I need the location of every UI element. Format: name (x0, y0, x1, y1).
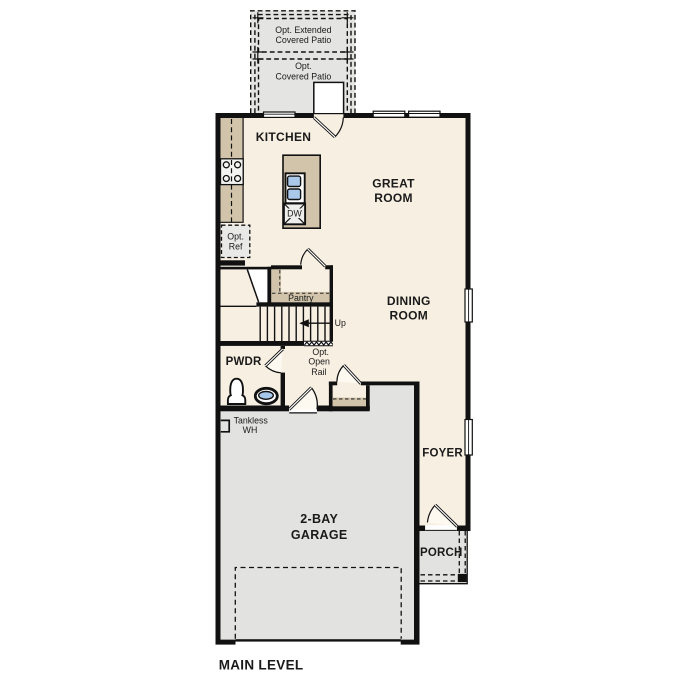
svg-text:FOYER: FOYER (422, 448, 463, 460)
svg-text:Ref: Ref (229, 242, 243, 252)
svg-text:GARAGE: GARAGE (291, 528, 348, 542)
svg-text:Opt. Extended: Opt. Extended (275, 25, 331, 35)
svg-text:Opt.: Opt. (295, 61, 312, 71)
svg-text:Up: Up (335, 318, 346, 328)
svg-text:Open: Open (308, 356, 330, 366)
svg-text:Opt.: Opt. (312, 347, 329, 357)
svg-text:PORCH: PORCH (420, 547, 463, 559)
svg-text:Opt.: Opt. (227, 231, 244, 241)
svg-text:GREAT: GREAT (372, 177, 415, 191)
svg-text:Rail: Rail (311, 367, 326, 377)
svg-text:ROOM: ROOM (390, 308, 429, 322)
svg-text:WH: WH (243, 425, 258, 435)
svg-text:ROOM: ROOM (374, 191, 413, 205)
svg-text:DINING: DINING (387, 294, 431, 308)
svg-text:Covered Patio: Covered Patio (276, 71, 332, 81)
svg-text:DW: DW (287, 209, 302, 219)
svg-text:Pantry: Pantry (288, 293, 314, 303)
svg-text:KITCHEN: KITCHEN (256, 130, 311, 144)
svg-text:MAIN LEVEL: MAIN LEVEL (219, 657, 304, 672)
svg-text:PWDR: PWDR (226, 356, 262, 368)
svg-text:2-BAY: 2-BAY (300, 512, 338, 526)
svg-text:Covered Patio: Covered Patio (276, 35, 332, 45)
